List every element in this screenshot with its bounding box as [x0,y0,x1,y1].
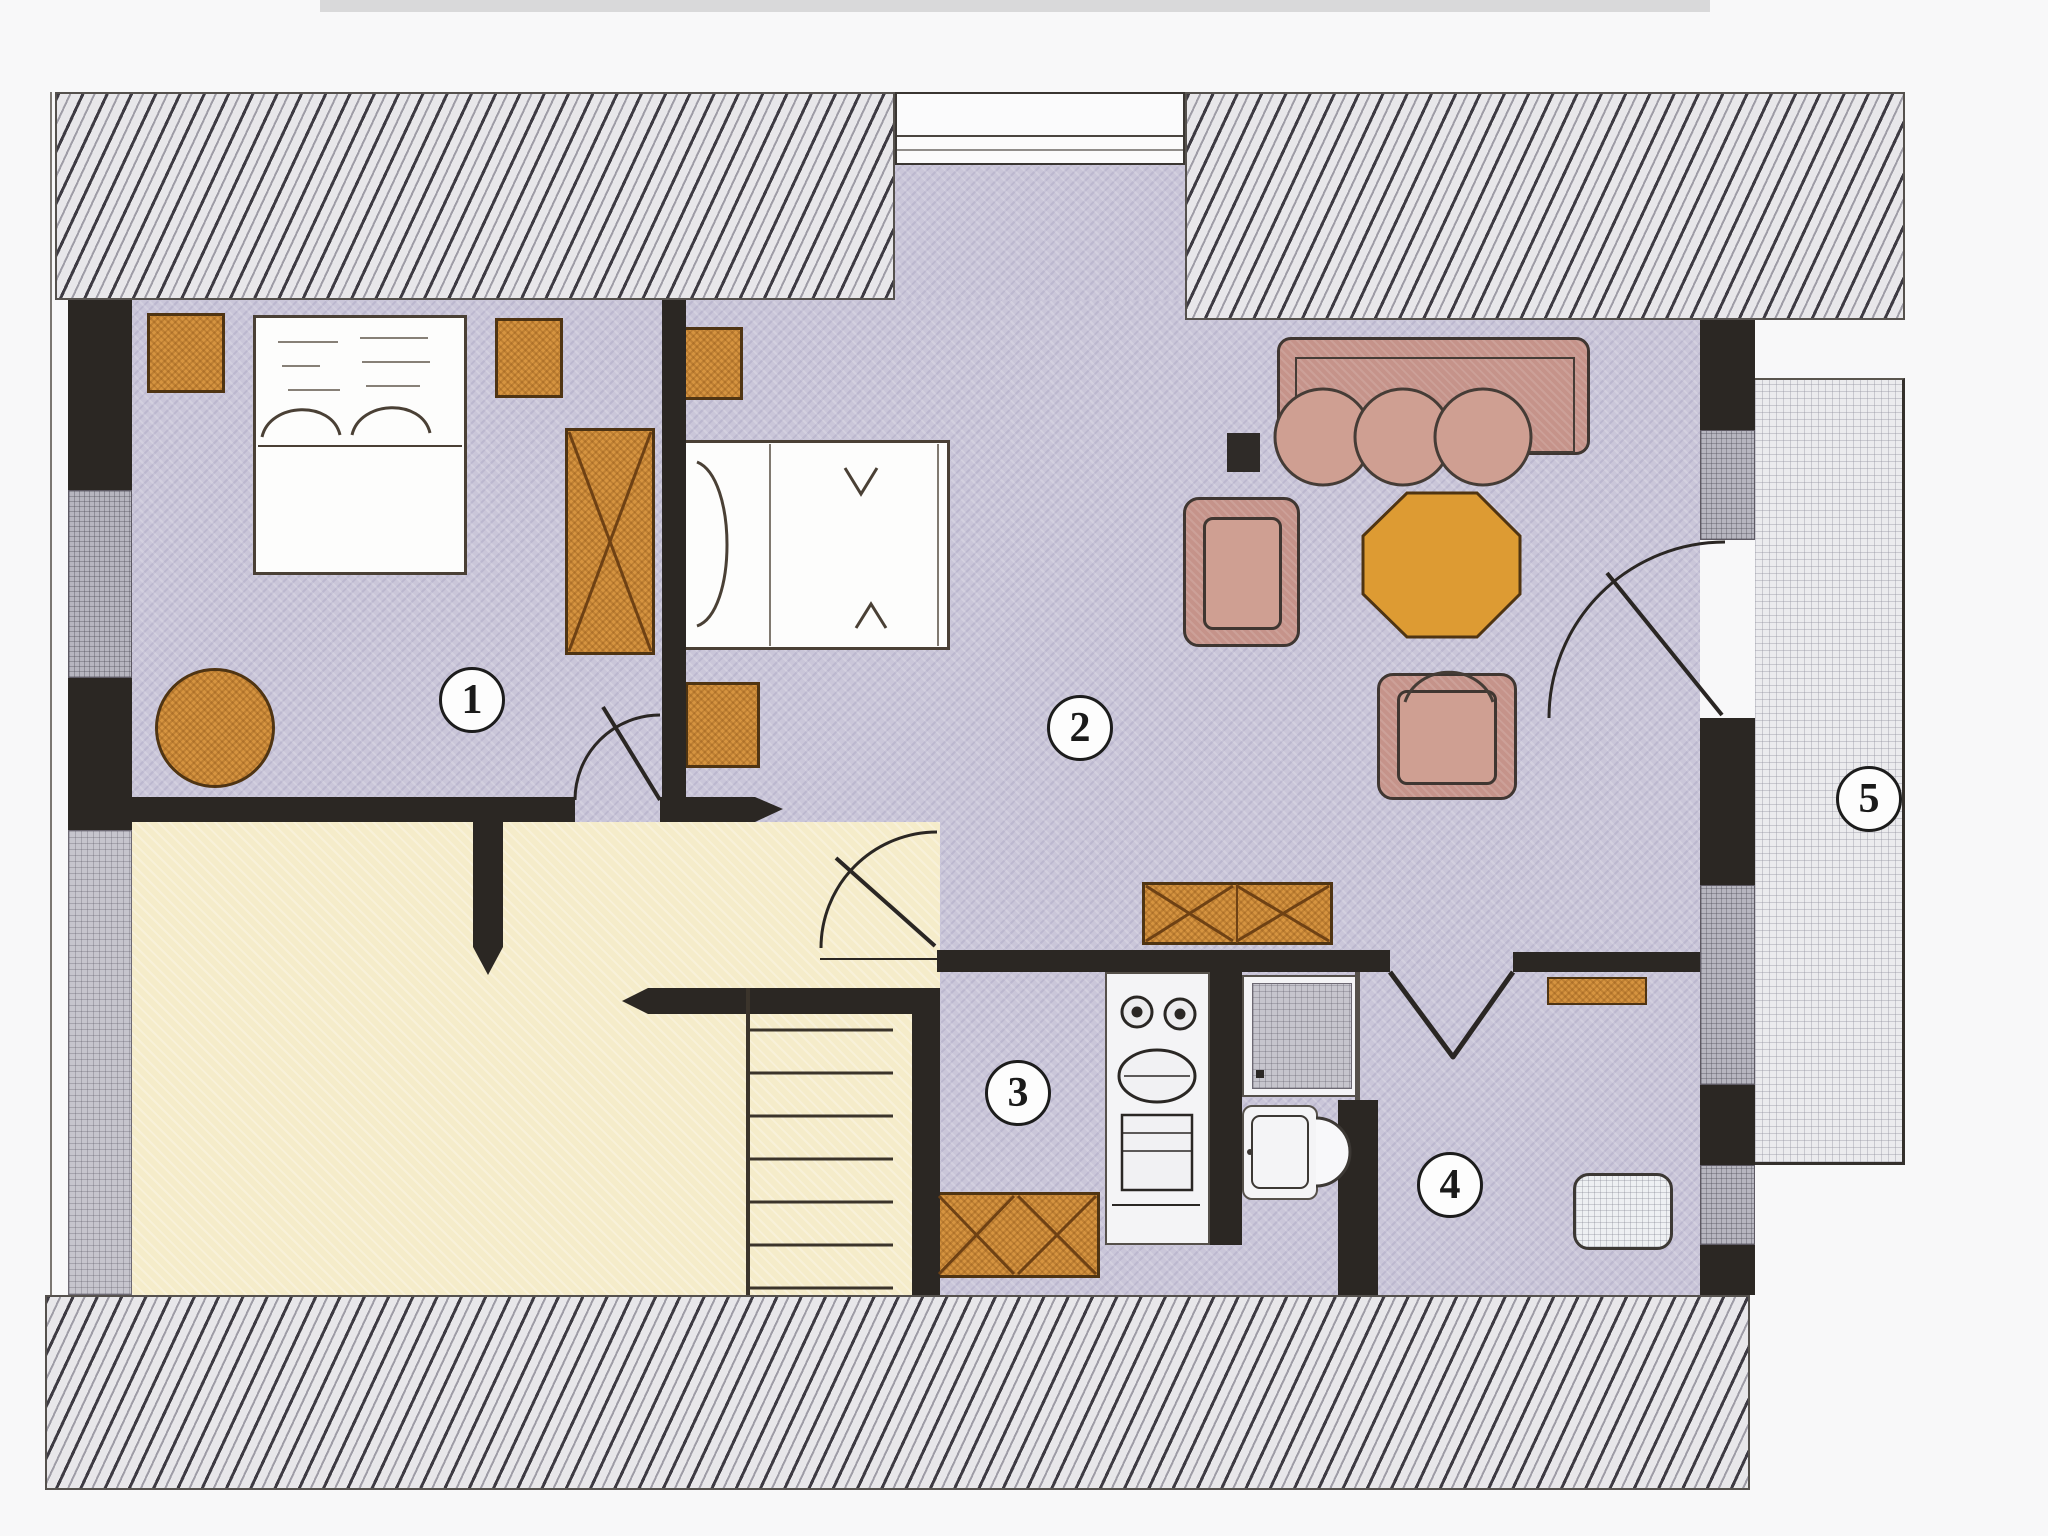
side-table [1227,433,1260,472]
wall-right-lower [1700,1085,1755,1165]
wall-right-mid [1700,718,1755,885]
wall-left-mid [68,678,132,830]
wall-stub-stairwell [473,822,503,947]
plan-outline-left [50,92,52,1490]
wall-room1-bottom [132,797,575,822]
bed-room2 [680,440,950,650]
wall-left-stairwell [68,830,132,1295]
shower-tray [1252,983,1352,1089]
room-number-2: 2 [1070,704,1091,752]
exterior-wall-bottom [45,1295,1750,1490]
washbasin [1242,1105,1318,1200]
kitchen-counter [1105,972,1210,1245]
wall-bathroom-top-right [1513,952,1700,972]
cabinet-room2 [1142,882,1333,945]
scan-artifact-strip [320,0,1710,12]
wall-room1-bottom-stub [660,797,755,822]
room-label-2: 2 [1047,695,1113,761]
wall-room1-room2-divider [662,300,686,800]
floor-window-notch [895,165,1185,300]
window-top [895,92,1185,165]
wall-stair-top [648,988,912,1014]
room-number-1: 1 [462,676,483,724]
bed-room1 [253,315,467,575]
window-right-room4-upper [1700,885,1755,1085]
wall-kitchen-top [937,950,1390,972]
nightstand-room1-right [495,318,563,398]
wall-shower-divider [1355,972,1360,1100]
room-number-4: 4 [1440,1161,1461,1209]
stairwell-floor [132,822,940,1295]
window-right-room4-lower [1700,1165,1755,1245]
room-label-1: 1 [439,667,505,733]
armchair-bottom-cushion [1397,690,1497,785]
wardrobe-room1 [565,428,655,655]
armchair-left-cushion [1203,517,1282,630]
nightstand-room1-left [147,313,225,393]
toilet [1573,1173,1673,1250]
round-table-room1 [155,668,275,788]
room-label-3: 3 [985,1060,1051,1126]
room-label-5: 5 [1836,766,1902,832]
room-number-3: 3 [1008,1069,1029,1117]
wall-right-bottom [1700,1245,1755,1295]
exterior-wall-top-right [1185,92,1905,320]
wall-left-upper [68,300,132,490]
shelf-bathroom [1547,977,1647,1005]
sofa-back-line [1295,357,1575,453]
window-left-room1 [68,490,132,678]
cabinet-corridor [935,1192,1100,1278]
wall-right-upper [1700,320,1755,430]
window-right-room2 [1700,430,1755,540]
wall-stair-right [912,988,940,1295]
exterior-wall-top-left [55,92,895,300]
room-label-4: 4 [1417,1152,1483,1218]
wall-kitchen-right [1210,972,1242,1245]
floor-plan-page: 1 2 3 4 5 [0,0,2048,1536]
wall-bathroom-inner [1338,1100,1378,1295]
room-number-5: 5 [1859,775,1880,823]
nightstand-room2-bottom [685,682,760,768]
